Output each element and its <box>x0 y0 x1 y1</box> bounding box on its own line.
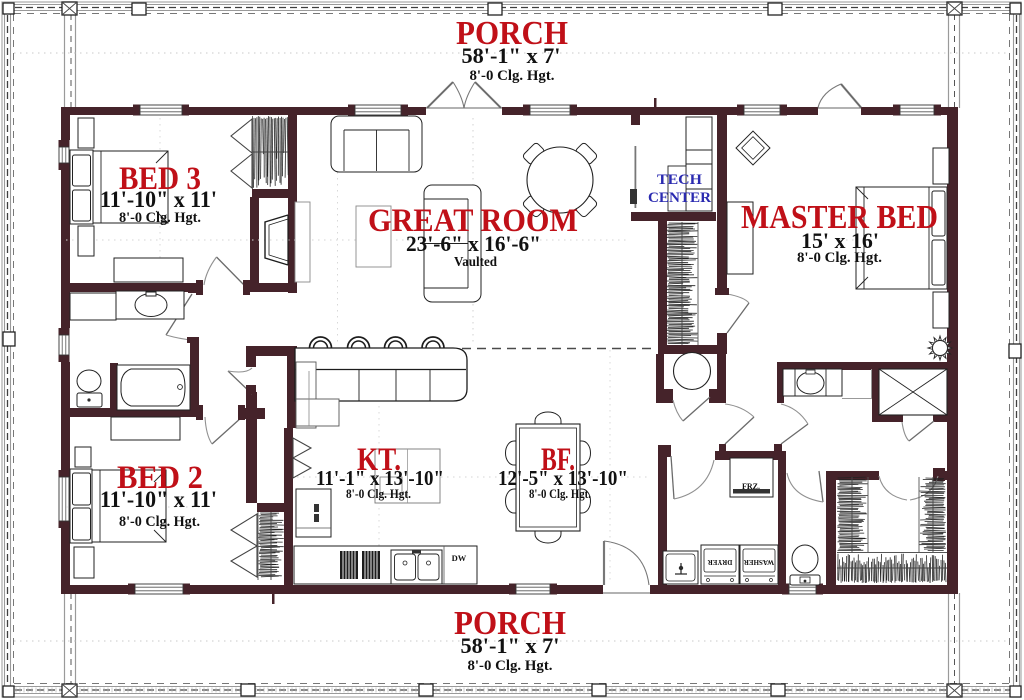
svg-text:Vaulted: Vaulted <box>454 255 497 270</box>
svg-text:8'-0 Clg. Hgt.: 8'-0 Clg. Hgt. <box>119 210 201 226</box>
svg-text:58'-1" x 7': 58'-1" x 7' <box>461 633 560 658</box>
svg-text:8'-0 Clg. Hgt.: 8'-0 Clg. Hgt. <box>468 658 553 674</box>
svg-text:TECH: TECH <box>657 172 702 188</box>
svg-text:FRZ.: FRZ. <box>742 482 760 491</box>
svg-text:11'-10" x 11': 11'-10" x 11' <box>100 187 217 212</box>
svg-text:8'-0 Clg. Hgt.: 8'-0 Clg. Hgt. <box>346 487 411 501</box>
svg-text:23'-6" x 16'-6": 23'-6" x 16'-6" <box>406 231 541 256</box>
svg-text:DW: DW <box>452 553 467 563</box>
svg-text:CENTER: CENTER <box>648 190 711 206</box>
svg-text:8'-0 Clg. Hgt.: 8'-0 Clg. Hgt. <box>119 514 200 530</box>
svg-text:WASHER: WASHER <box>743 558 774 566</box>
svg-text:8'-0 Clg. Hgt.: 8'-0 Clg. Hgt. <box>529 487 591 501</box>
svg-text:8'-0 Clg. Hgt.: 8'-0 Clg. Hgt. <box>797 250 882 266</box>
svg-text:8'-0 Clg. Hgt.: 8'-0 Clg. Hgt. <box>470 68 555 84</box>
svg-text:DRYER: DRYER <box>707 558 733 566</box>
svg-text:11'-10" x 11': 11'-10" x 11' <box>100 487 217 512</box>
svg-text:58'-1" x 7': 58'-1" x 7' <box>462 43 561 68</box>
